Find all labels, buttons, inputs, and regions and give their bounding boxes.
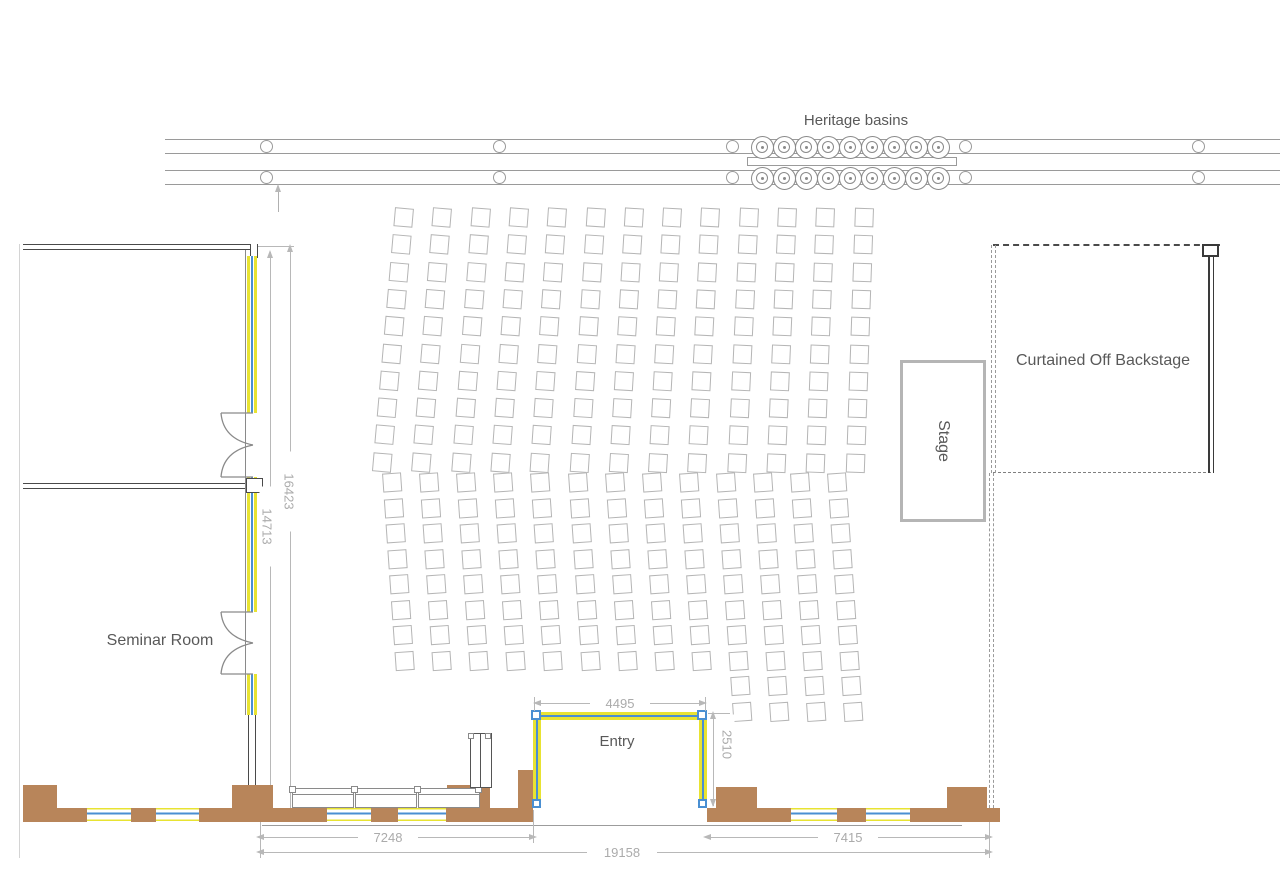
seat bbox=[432, 650, 452, 670]
dim-16423-line bbox=[290, 246, 291, 820]
seat bbox=[426, 574, 446, 594]
heritage-basin bbox=[927, 136, 950, 159]
seat bbox=[490, 452, 510, 472]
seat bbox=[502, 600, 522, 620]
seat bbox=[386, 289, 407, 310]
window bbox=[156, 808, 199, 821]
seat bbox=[775, 262, 795, 282]
seat-column bbox=[490, 207, 529, 481]
seat bbox=[695, 317, 715, 337]
seat-column bbox=[568, 472, 601, 677]
window bbox=[327, 808, 371, 821]
seat bbox=[660, 235, 680, 255]
seat bbox=[734, 317, 754, 337]
seat bbox=[689, 426, 709, 446]
seat bbox=[430, 625, 450, 645]
seat bbox=[812, 289, 832, 309]
seat bbox=[502, 289, 522, 309]
seat bbox=[456, 472, 476, 492]
seat bbox=[690, 398, 710, 418]
seat bbox=[764, 625, 784, 645]
heritage-basin bbox=[839, 167, 862, 190]
heritage-basin bbox=[751, 167, 774, 190]
seat bbox=[689, 625, 709, 645]
seminar-glazing bbox=[247, 674, 257, 715]
seat bbox=[642, 472, 662, 492]
window bbox=[866, 808, 910, 821]
seat bbox=[571, 425, 591, 445]
bench-post bbox=[351, 786, 358, 793]
seat bbox=[727, 625, 747, 645]
backstage-label: Curtained Off Backstage bbox=[1000, 352, 1206, 370]
seat bbox=[833, 549, 853, 569]
seat bbox=[458, 498, 478, 518]
seat bbox=[391, 600, 411, 620]
seat bbox=[539, 316, 559, 336]
seat-column bbox=[687, 208, 720, 482]
seat bbox=[651, 398, 671, 418]
rail-post bbox=[959, 140, 972, 153]
backstage-right-wall bbox=[1208, 256, 1210, 473]
rail-leader-arrow bbox=[275, 184, 281, 192]
wall-return-panel bbox=[470, 733, 492, 788]
rail-post bbox=[726, 171, 739, 184]
seat bbox=[608, 523, 628, 543]
seat bbox=[681, 498, 701, 518]
seat bbox=[605, 472, 625, 492]
wall-return-panel-divider bbox=[480, 734, 481, 787]
seat bbox=[374, 425, 395, 446]
seat bbox=[624, 207, 644, 227]
seat bbox=[575, 371, 595, 391]
seat-column bbox=[753, 472, 790, 728]
seminar-glazing bbox=[247, 256, 257, 413]
seat bbox=[547, 207, 567, 227]
dim-arrow bbox=[267, 250, 273, 258]
seat-column bbox=[529, 207, 567, 481]
seat bbox=[841, 676, 861, 696]
backstage-corner-column bbox=[1202, 244, 1219, 257]
seat bbox=[769, 701, 789, 721]
bench-section bbox=[418, 788, 480, 808]
seat bbox=[425, 289, 446, 310]
dim-arrow bbox=[703, 834, 711, 840]
seat bbox=[811, 317, 831, 337]
seat bbox=[654, 344, 674, 364]
seat bbox=[797, 574, 817, 594]
seat bbox=[847, 399, 867, 419]
seat bbox=[568, 472, 588, 492]
seat bbox=[571, 523, 591, 543]
seat bbox=[620, 262, 640, 282]
dim-arrow bbox=[256, 834, 264, 840]
window bbox=[791, 808, 837, 821]
dim-arrow bbox=[529, 834, 537, 840]
seat bbox=[643, 498, 663, 518]
seat bbox=[468, 234, 488, 254]
dim-arrow bbox=[256, 849, 264, 855]
heritage-basins-label: Heritage basins bbox=[790, 112, 922, 129]
seat bbox=[455, 398, 475, 418]
dim-arrow bbox=[287, 244, 293, 252]
seat bbox=[496, 371, 516, 391]
seat bbox=[493, 472, 513, 492]
seat bbox=[585, 207, 605, 227]
entry-corner-joint bbox=[531, 710, 541, 720]
seat bbox=[730, 676, 750, 696]
wall-pier bbox=[371, 808, 398, 822]
seat bbox=[462, 549, 482, 569]
seat bbox=[725, 600, 745, 620]
seat bbox=[692, 371, 712, 391]
seat bbox=[648, 453, 668, 473]
backstage-left-curtain bbox=[995, 245, 996, 473]
bench-post bbox=[289, 786, 296, 793]
seat-column bbox=[530, 472, 563, 677]
seat bbox=[615, 625, 635, 645]
seat bbox=[509, 207, 529, 227]
seat bbox=[575, 574, 595, 594]
seat bbox=[769, 398, 789, 418]
heritage-basin bbox=[817, 136, 840, 159]
seat bbox=[814, 235, 834, 255]
heritage-basin bbox=[905, 167, 928, 190]
curtain-line bbox=[989, 473, 990, 808]
seat bbox=[806, 701, 826, 721]
dim-2510-line bbox=[713, 713, 714, 806]
heritage-basin bbox=[861, 167, 884, 190]
wall-pier bbox=[837, 808, 866, 822]
seat bbox=[427, 262, 448, 283]
seat bbox=[494, 398, 514, 418]
seat-column bbox=[766, 208, 797, 482]
heritage-basin bbox=[795, 136, 818, 159]
seat bbox=[429, 234, 450, 255]
seat bbox=[718, 498, 738, 518]
seat bbox=[739, 208, 759, 228]
wall-top-room bbox=[23, 244, 252, 250]
seat bbox=[719, 523, 739, 543]
seat bbox=[569, 498, 589, 518]
seat bbox=[389, 574, 409, 594]
seat bbox=[534, 523, 554, 543]
wall-pier bbox=[947, 787, 987, 808]
seat bbox=[428, 600, 448, 620]
seat bbox=[654, 650, 674, 670]
seat-column bbox=[679, 472, 712, 677]
seat bbox=[765, 650, 785, 670]
seat bbox=[492, 425, 512, 445]
seat bbox=[580, 650, 600, 670]
dim-14713-label: 14713 bbox=[260, 487, 275, 567]
seat bbox=[652, 625, 672, 645]
heritage-basin bbox=[773, 167, 796, 190]
seat bbox=[696, 289, 716, 309]
window bbox=[398, 808, 446, 821]
seat bbox=[382, 472, 402, 492]
seat bbox=[465, 600, 485, 620]
stage-area: Stage bbox=[900, 360, 986, 522]
entry-wall-top bbox=[533, 712, 707, 720]
rail-post bbox=[493, 171, 506, 184]
seat bbox=[459, 343, 479, 363]
seat bbox=[372, 452, 393, 473]
seat bbox=[829, 498, 849, 518]
rail-post bbox=[493, 140, 506, 153]
seat-column bbox=[419, 472, 452, 677]
seat bbox=[610, 549, 630, 569]
seat bbox=[795, 549, 815, 569]
seat bbox=[809, 371, 829, 391]
seat bbox=[377, 398, 398, 419]
seat bbox=[470, 207, 490, 227]
seat bbox=[730, 398, 750, 418]
seat bbox=[610, 425, 630, 445]
dim-arrow bbox=[533, 700, 541, 706]
seat-column bbox=[845, 208, 874, 481]
seat bbox=[500, 316, 520, 336]
seat bbox=[381, 343, 402, 364]
seat bbox=[827, 472, 847, 492]
backstage-right-wall bbox=[1213, 256, 1214, 473]
heritage-basin bbox=[795, 167, 818, 190]
seat bbox=[656, 316, 676, 336]
seat bbox=[499, 549, 519, 569]
seat bbox=[838, 625, 858, 645]
seat bbox=[504, 625, 524, 645]
seat bbox=[721, 549, 741, 569]
seat bbox=[732, 701, 752, 721]
rail-post bbox=[726, 140, 739, 153]
seat bbox=[790, 472, 810, 492]
seat-column bbox=[608, 207, 644, 481]
heritage-basin bbox=[861, 136, 884, 159]
seat bbox=[850, 317, 870, 337]
seat bbox=[803, 650, 823, 670]
seat bbox=[536, 549, 556, 569]
seat bbox=[813, 262, 833, 282]
seat bbox=[728, 650, 748, 670]
backstage-bottom-curtain bbox=[993, 472, 1211, 473]
seat bbox=[576, 344, 596, 364]
seat bbox=[423, 316, 444, 337]
seat bbox=[757, 523, 777, 543]
seat bbox=[645, 523, 665, 543]
dim-2510-label: 2510 bbox=[720, 715, 735, 775]
seat bbox=[679, 472, 699, 492]
rail-post bbox=[260, 171, 273, 184]
seat bbox=[698, 262, 718, 282]
seat bbox=[737, 235, 757, 255]
rail-line bbox=[165, 170, 1280, 171]
entry-label: Entry bbox=[567, 733, 667, 750]
seat bbox=[732, 344, 752, 364]
seat-column bbox=[450, 207, 490, 481]
stage-label: Stage bbox=[934, 420, 952, 462]
seat bbox=[500, 574, 520, 594]
entry-corner-joint bbox=[532, 799, 541, 808]
seat bbox=[716, 472, 736, 492]
seat bbox=[852, 262, 872, 282]
seat bbox=[545, 235, 565, 255]
double-door-upper bbox=[217, 411, 257, 479]
seat bbox=[506, 235, 526, 255]
seat bbox=[462, 316, 482, 336]
seat bbox=[682, 523, 702, 543]
seat bbox=[379, 370, 400, 391]
seat bbox=[419, 472, 439, 492]
seat bbox=[777, 208, 797, 228]
seat bbox=[792, 498, 812, 518]
seat bbox=[460, 523, 480, 543]
wall-column bbox=[518, 770, 533, 822]
seat-column bbox=[806, 208, 836, 482]
seat bbox=[411, 452, 432, 473]
seat bbox=[617, 650, 637, 670]
heritage-basin bbox=[751, 136, 774, 159]
seat bbox=[688, 600, 708, 620]
backstage-top-wall bbox=[993, 244, 1220, 246]
seat bbox=[760, 574, 780, 594]
seat bbox=[691, 650, 711, 670]
seat bbox=[453, 425, 473, 445]
seat bbox=[755, 498, 775, 518]
seminar-room-label: Seminar Room bbox=[85, 632, 235, 650]
seat bbox=[807, 426, 827, 446]
seat bbox=[466, 262, 486, 282]
seat bbox=[416, 398, 437, 419]
seat bbox=[498, 343, 518, 363]
rail-post bbox=[959, 171, 972, 184]
backstage-left-curtain bbox=[991, 245, 992, 473]
seat bbox=[843, 701, 863, 721]
seat bbox=[816, 208, 836, 228]
seat bbox=[578, 316, 598, 336]
panel-post bbox=[485, 733, 491, 739]
seat bbox=[506, 650, 526, 670]
seat bbox=[389, 262, 410, 283]
seat bbox=[609, 453, 629, 473]
seat bbox=[423, 523, 443, 543]
seat bbox=[768, 426, 788, 446]
seat bbox=[735, 289, 755, 309]
heritage-basin bbox=[927, 167, 950, 190]
seat bbox=[771, 344, 791, 364]
seat bbox=[451, 452, 471, 472]
dim-arrow bbox=[699, 700, 707, 706]
seat bbox=[776, 235, 796, 255]
seat bbox=[615, 344, 635, 364]
seat-column bbox=[382, 472, 415, 677]
seat bbox=[530, 452, 550, 472]
seat bbox=[424, 549, 444, 569]
seat bbox=[612, 398, 632, 418]
seat bbox=[573, 549, 593, 569]
seat bbox=[393, 625, 413, 645]
seat bbox=[569, 453, 589, 473]
wall-mid-room bbox=[23, 483, 247, 489]
heritage-basin bbox=[817, 167, 840, 190]
rail-post bbox=[1192, 140, 1205, 153]
seat bbox=[699, 235, 719, 255]
bench-section bbox=[292, 788, 354, 808]
seat bbox=[853, 235, 873, 255]
seat bbox=[774, 289, 794, 309]
rail-line bbox=[165, 139, 1280, 140]
seat bbox=[799, 600, 819, 620]
dim-16423-label: 16423 bbox=[282, 452, 297, 532]
seat bbox=[421, 498, 441, 518]
seat bbox=[653, 371, 673, 391]
seat bbox=[753, 472, 773, 492]
dim-7248-label: 7248 bbox=[358, 830, 418, 845]
seat bbox=[532, 498, 552, 518]
heritage-basin bbox=[773, 136, 796, 159]
seat bbox=[384, 498, 404, 518]
seat bbox=[766, 453, 786, 473]
seat bbox=[541, 289, 561, 309]
seat bbox=[840, 650, 860, 670]
floor-plan: Heritage basins Seminar Room 14713 bbox=[0, 0, 1280, 873]
frontage-baseline bbox=[262, 825, 962, 826]
seat bbox=[619, 289, 639, 309]
dim-7415-label: 7415 bbox=[818, 830, 878, 845]
seat bbox=[848, 371, 868, 391]
seat bbox=[469, 650, 489, 670]
seat bbox=[801, 625, 821, 645]
seat bbox=[463, 574, 483, 594]
seat bbox=[657, 289, 677, 309]
seat bbox=[532, 425, 552, 445]
seat bbox=[432, 207, 453, 228]
seat bbox=[831, 523, 851, 543]
seat bbox=[573, 398, 593, 418]
seat bbox=[541, 625, 561, 645]
seat bbox=[731, 371, 751, 391]
seat bbox=[808, 399, 828, 419]
seat bbox=[727, 453, 747, 473]
wall-pier bbox=[131, 808, 156, 822]
wall-sill bbox=[199, 808, 232, 822]
seat-column bbox=[493, 472, 526, 677]
seat bbox=[387, 549, 407, 569]
seat bbox=[849, 344, 869, 364]
heritage-basin bbox=[883, 136, 906, 159]
seat bbox=[543, 262, 563, 282]
seat bbox=[736, 262, 756, 282]
seat bbox=[845, 453, 865, 473]
heritage-basin bbox=[839, 136, 862, 159]
seat-column bbox=[727, 208, 759, 482]
seat-column bbox=[605, 472, 638, 677]
seat bbox=[622, 235, 642, 255]
seat bbox=[688, 453, 708, 473]
seat bbox=[580, 289, 600, 309]
seat bbox=[834, 574, 854, 594]
seat bbox=[762, 600, 782, 620]
seat bbox=[393, 207, 414, 228]
seat bbox=[538, 574, 558, 594]
dim-4495-label: 4495 bbox=[590, 696, 650, 711]
rail-post bbox=[1192, 171, 1205, 184]
seat bbox=[810, 344, 830, 364]
seat bbox=[583, 235, 603, 255]
seat bbox=[537, 344, 557, 364]
seat bbox=[467, 625, 487, 645]
seat bbox=[530, 472, 550, 492]
seat bbox=[770, 371, 790, 391]
seat bbox=[693, 344, 713, 364]
